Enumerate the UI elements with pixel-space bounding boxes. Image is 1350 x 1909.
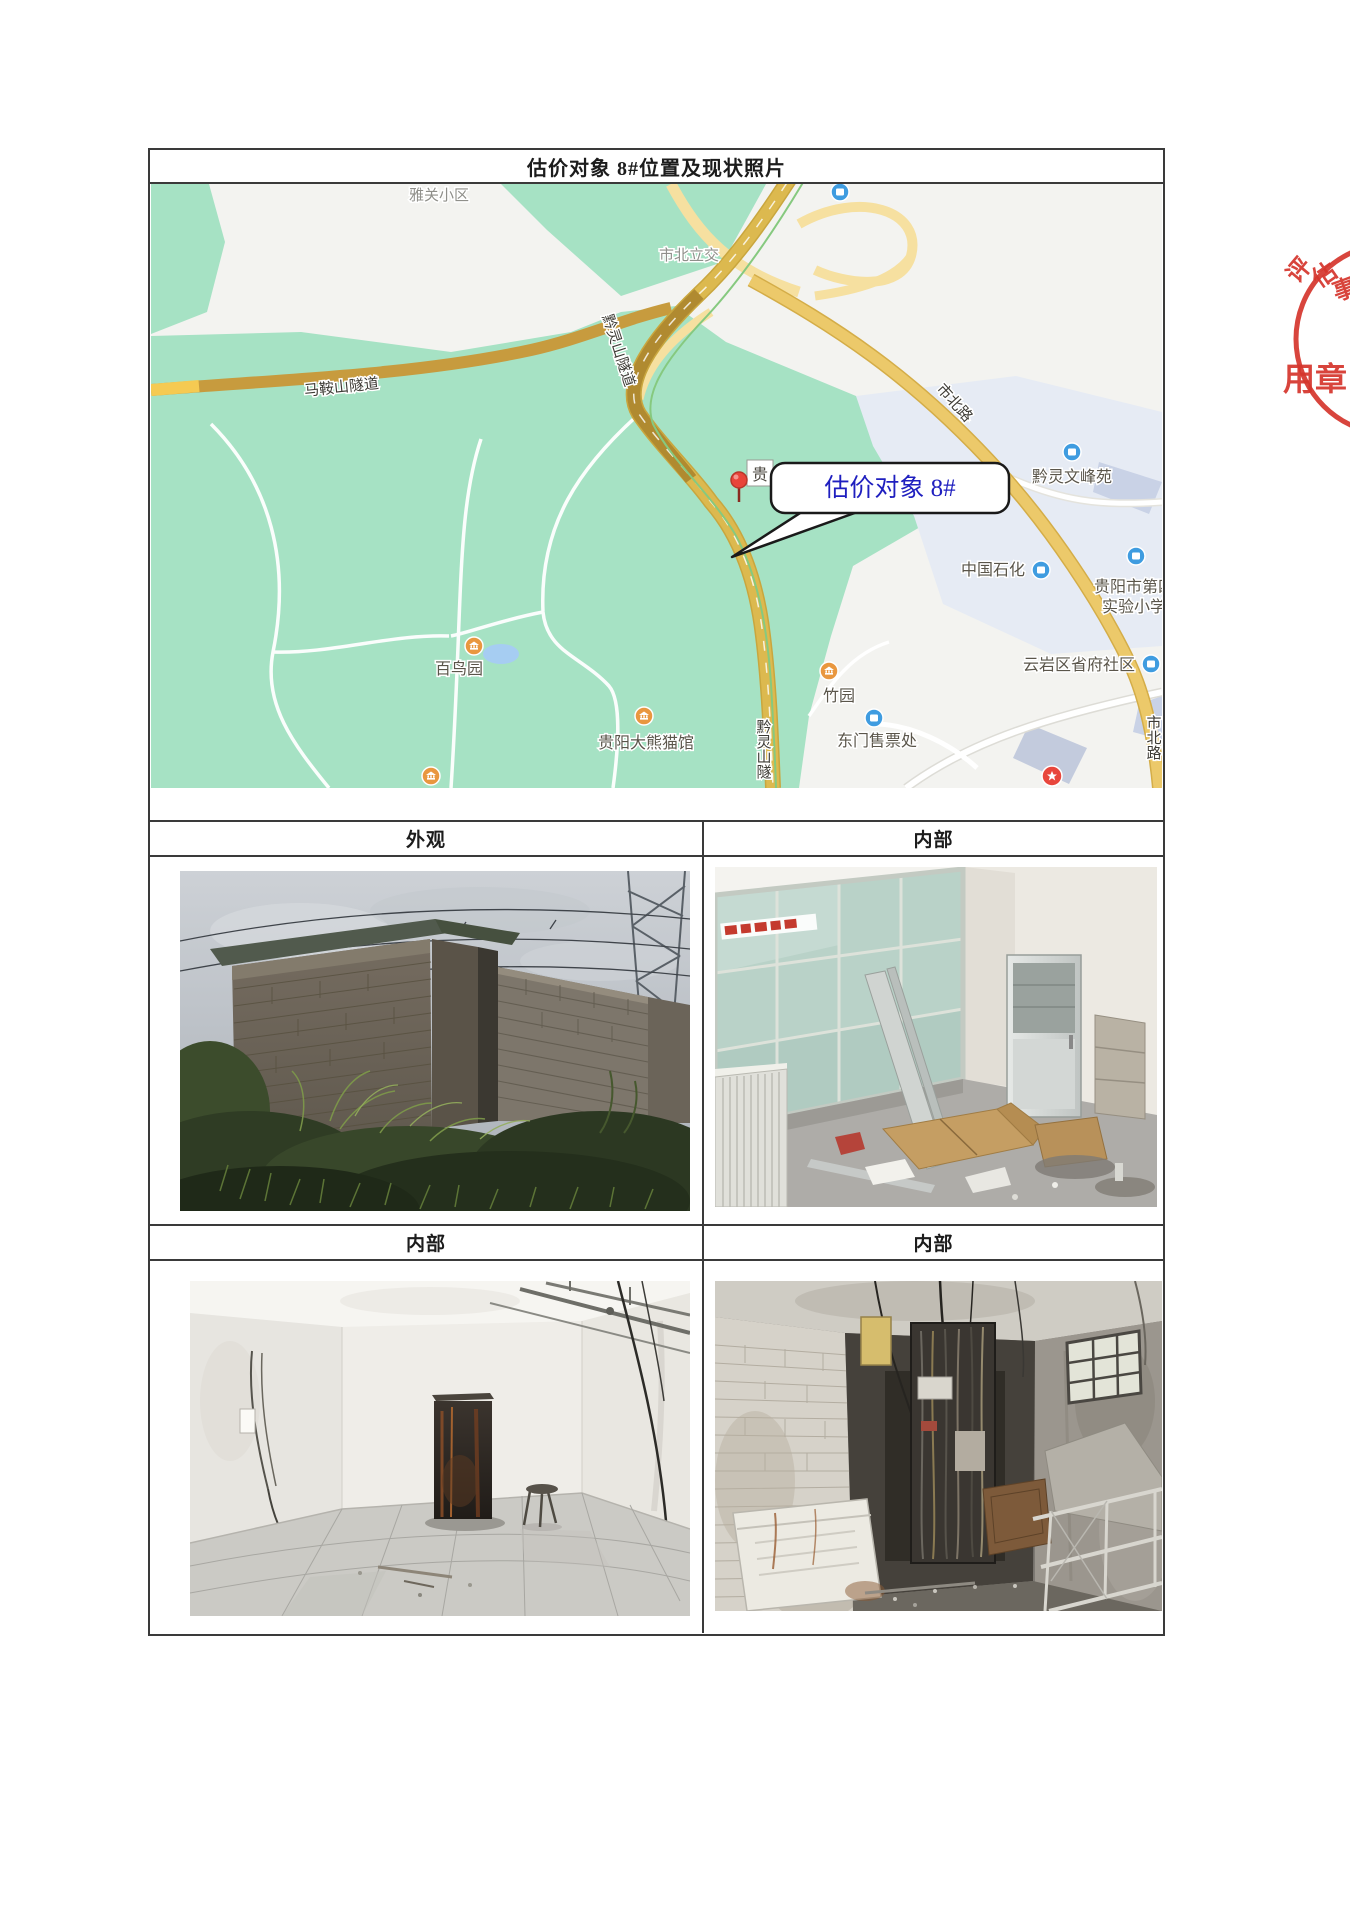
panda-house-icon <box>635 707 653 725</box>
metal-cabinet <box>1007 955 1081 1117</box>
bird-garden-icon <box>465 637 483 655</box>
header-exterior: 外观 <box>150 822 702 855</box>
header-row-2: 内部 内部 <box>150 1226 1163 1261</box>
seal-center-text: 用章 <box>1283 361 1347 397</box>
barred-window <box>1067 1331 1141 1403</box>
report-page: 估价对象 8#位置及现状照片 <box>0 0 1350 1909</box>
photo-interior-3 <box>715 1281 1162 1611</box>
wenfengyuan-icon <box>1063 443 1081 461</box>
pin-label-text: 贵 <box>752 466 768 484</box>
photo-table: 估价对象 8#位置及现状照片 <box>148 148 1165 1636</box>
equipment-rack <box>911 1323 995 1563</box>
label-shibei-road-lower: 市北路 <box>1146 715 1161 762</box>
ticket-office-icon <box>865 709 883 727</box>
callout-text: 估价对象 8# <box>824 474 956 502</box>
header-interior-3: 内部 <box>702 1226 1163 1259</box>
label-community: 云岩区省府社区 <box>1023 656 1135 674</box>
label-qianling-tunnel-2: 黔灵山隧 <box>756 719 771 781</box>
photo-exterior <box>180 871 690 1211</box>
photo-interior-2 <box>190 1281 690 1616</box>
electrical-box <box>861 1317 891 1365</box>
scenic-star-icon <box>1042 766 1062 786</box>
radiator-panel <box>715 1063 787 1207</box>
header-row-1: 外观 内部 <box>150 822 1163 857</box>
sinopec-icon <box>1032 561 1050 579</box>
pond <box>483 644 519 664</box>
table-title-row: 估价对象 8#位置及现状照片 <box>150 150 1163 184</box>
community-icon <box>1142 655 1160 673</box>
school-icon <box>1127 547 1145 565</box>
label-school-1: 贵阳市第四 <box>1094 578 1162 596</box>
header-interior-2: 内部 <box>150 1226 702 1259</box>
poi-icon-top <box>831 184 849 201</box>
label-yaguan: 雅关小区 <box>409 187 469 204</box>
label-bird-garden: 百鸟园 <box>435 660 483 678</box>
label-east-gate: 东门售票处 <box>837 732 917 750</box>
pin-label-box: 贵 <box>747 460 773 486</box>
label-wenfengyuan: 黔灵文峰苑 <box>1032 468 1112 486</box>
photo-interior-1 <box>715 867 1157 1207</box>
label-sinopec: 中国石化 <box>961 561 1025 579</box>
location-map: 雅关小区 市北立交 马鞍山隧道 黔灵山隧道 黔灵山隧 市北路 市北路 黔灵文峰苑… <box>151 184 1162 788</box>
label-school-2: 实验小学 <box>1102 598 1162 616</box>
bamboo-garden-icon <box>820 662 838 680</box>
label-bamboo-garden: 竹园 <box>823 687 855 705</box>
label-panda-house: 贵阳大熊猫馆 <box>598 734 694 752</box>
photo-row-1 <box>150 857 1163 1226</box>
page-title: 估价对象 8#位置及现状照片 <box>527 152 786 181</box>
poi-icon-bottom-left <box>422 767 440 785</box>
white-chest <box>733 1499 885 1611</box>
map-row: 雅关小区 市北立交 马鞍山隧道 黔灵山隧道 黔灵山隧 市北路 市北路 黔灵文峰苑… <box>150 184 1163 822</box>
label-interchange: 市北立交 <box>659 246 719 264</box>
red-seal: 评 估 事 用章 <box>1255 228 1350 458</box>
photo-row-2 <box>150 1261 1163 1633</box>
header-interior-1: 内部 <box>702 822 1163 855</box>
